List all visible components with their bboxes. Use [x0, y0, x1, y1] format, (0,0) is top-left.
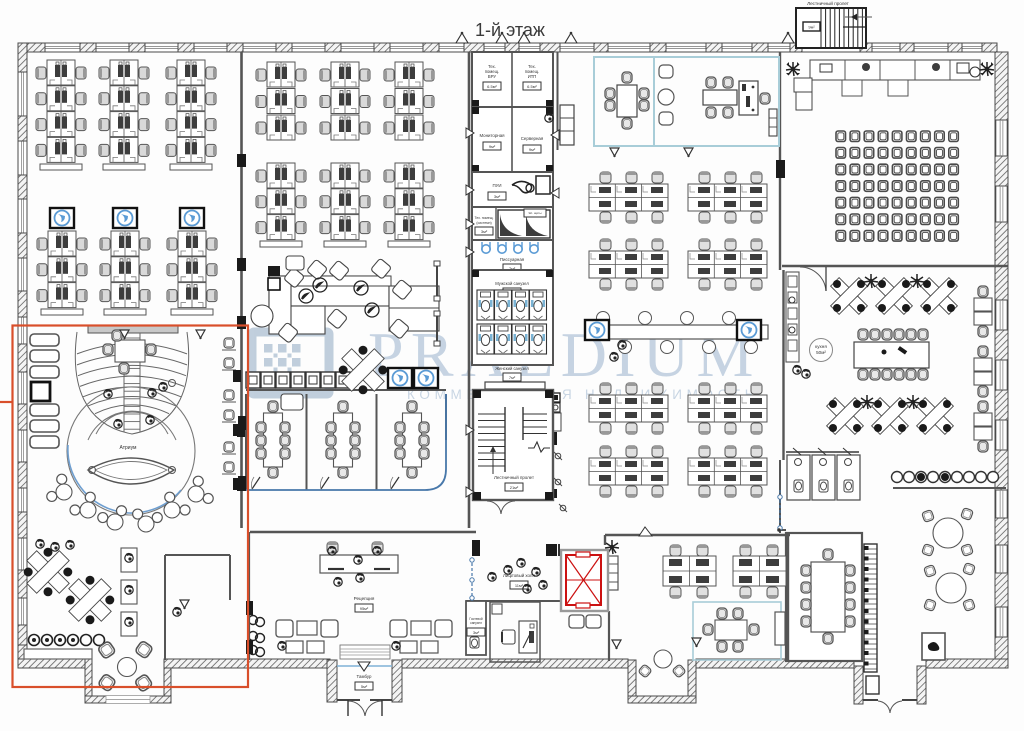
svg-text:ИТП: ИТП — [528, 74, 537, 79]
svg-text:3м²: 3м² — [481, 229, 488, 234]
svg-text:3м²: 3м² — [473, 630, 480, 635]
svg-text:5м²: 5м² — [361, 684, 368, 689]
svg-text:6.5м²: 6.5м² — [487, 84, 497, 89]
svg-text:Атриум: Атриум — [120, 445, 138, 451]
svg-text:Мужской санузел: Мужской санузел — [495, 281, 529, 286]
svg-text:Лестничный пролет: Лестничный пролет — [807, 0, 850, 6]
svg-text:Эл. щиты: Эл. щиты — [528, 211, 541, 215]
svg-text:Мониторная: Мониторная — [479, 133, 505, 138]
svg-text:Серверная: Серверная — [521, 136, 544, 141]
svg-text:санузел: санузел — [470, 621, 482, 625]
svg-text:7м²: 7м² — [509, 375, 516, 380]
svg-text:Тамбур: Тамбур — [357, 674, 372, 679]
svg-text:95м²: 95м² — [360, 606, 369, 611]
svg-text:ПУИ: ПУИ — [492, 183, 501, 188]
svg-text:ВРУ: ВРУ — [488, 74, 496, 79]
svg-text:6.5м²: 6.5м² — [527, 84, 537, 89]
svg-text:Женский санузел: Женский санузел — [495, 366, 529, 371]
svg-text:(системн): (системн) — [476, 221, 491, 225]
svg-text:9м²: 9м² — [489, 144, 496, 149]
svg-text:Тех. помещ.: Тех. помещ. — [475, 216, 494, 220]
svg-text:3м²: 3м² — [494, 194, 501, 199]
svg-text:21м²: 21м² — [510, 485, 519, 490]
svg-text:1-й этаж: 1-й этаж — [475, 20, 545, 40]
svg-text:9м²: 9м² — [808, 25, 815, 30]
svg-text:9м²: 9м² — [529, 147, 536, 152]
svg-text:50м²: 50м² — [816, 350, 826, 355]
svg-text:Рецепция: Рецепция — [354, 596, 375, 601]
svg-text:Лестничный пролет: Лестничный пролет — [494, 475, 534, 480]
svg-text:11м²: 11м² — [515, 583, 524, 588]
svg-text:кухня: кухня — [815, 344, 827, 349]
svg-text:Писсуарная: Писсуарная — [500, 257, 525, 262]
